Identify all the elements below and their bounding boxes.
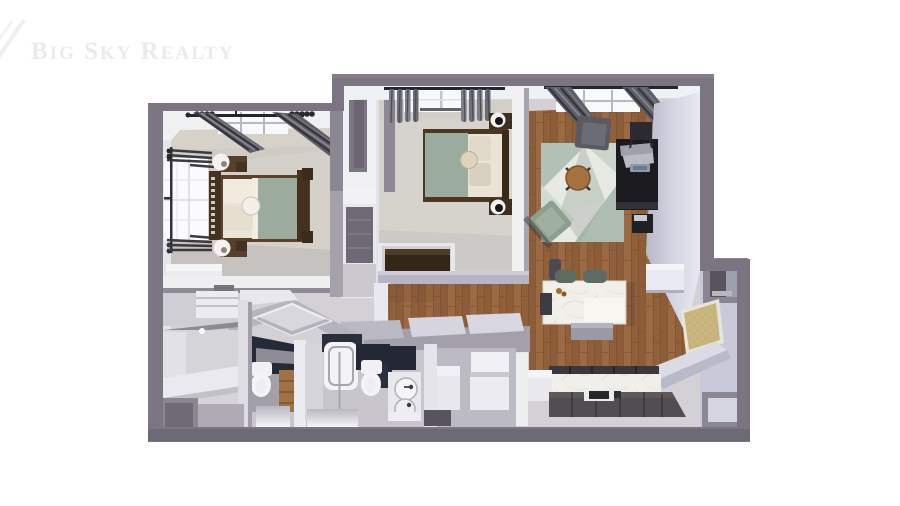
svg-text:BIG SKY REALTY: BIG SKY REALTY (31, 38, 235, 65)
